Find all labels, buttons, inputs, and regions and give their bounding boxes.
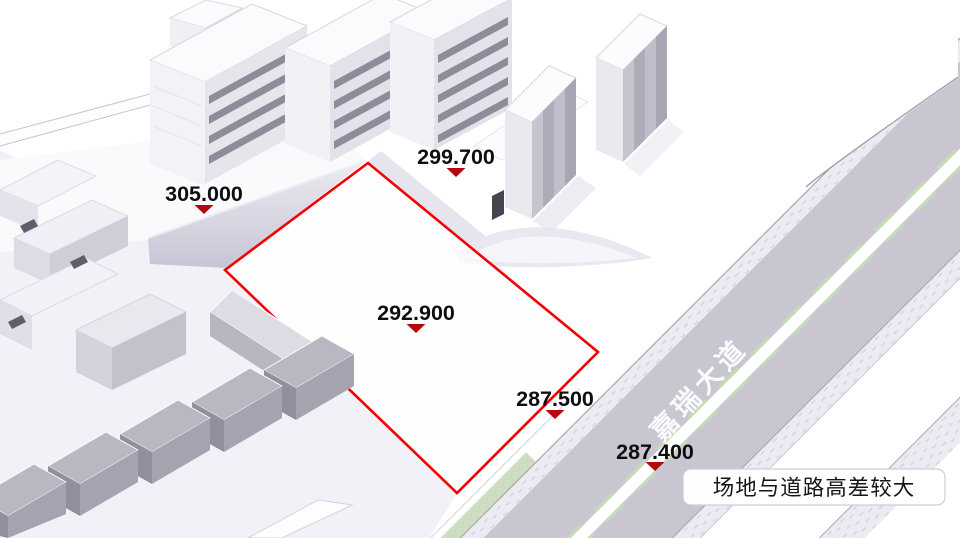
elevation-value: 305.000 bbox=[165, 182, 243, 206]
elevation-value: 287.400 bbox=[616, 440, 694, 464]
elevation-value: 292.900 bbox=[377, 301, 455, 325]
annotation-label: 场地与道路高差较大 bbox=[713, 476, 916, 500]
axonometric-site-model: 嘉瑞大道 305.000 299.700 292.900 287.500 287… bbox=[0, 0, 960, 538]
elevation-value: 299.700 bbox=[417, 145, 495, 169]
annotation: 场地与道路高差较大 bbox=[683, 469, 945, 505]
site-analysis-diagram: 嘉瑞大道 305.000 299.700 292.900 287.500 287… bbox=[0, 0, 960, 538]
elevation-value: 287.500 bbox=[516, 387, 594, 411]
